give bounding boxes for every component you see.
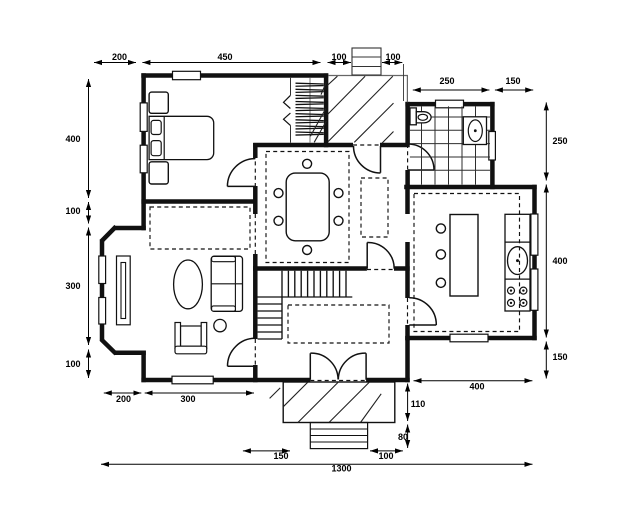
svg-text:100: 100 [65, 359, 80, 369]
svg-text:110: 110 [411, 399, 426, 409]
svg-text:300: 300 [65, 281, 80, 291]
svg-text:100: 100 [331, 52, 346, 62]
svg-text:100: 100 [65, 206, 80, 216]
svg-text:400: 400 [65, 134, 80, 144]
svg-text:150: 150 [273, 451, 288, 461]
svg-text:1300: 1300 [331, 464, 351, 474]
svg-text:100: 100 [385, 52, 400, 62]
svg-text:80: 80 [398, 432, 408, 442]
svg-text:300: 300 [180, 394, 195, 404]
svg-text:200: 200 [116, 394, 131, 404]
svg-text:450: 450 [217, 52, 232, 62]
svg-text:400: 400 [469, 382, 484, 392]
svg-text:400: 400 [552, 256, 567, 266]
svg-text:150: 150 [505, 76, 520, 86]
svg-text:250: 250 [439, 76, 454, 86]
svg-text:250: 250 [552, 136, 567, 146]
svg-text:100: 100 [378, 451, 393, 461]
svg-text:200: 200 [112, 52, 127, 62]
svg-text:150: 150 [552, 352, 567, 362]
